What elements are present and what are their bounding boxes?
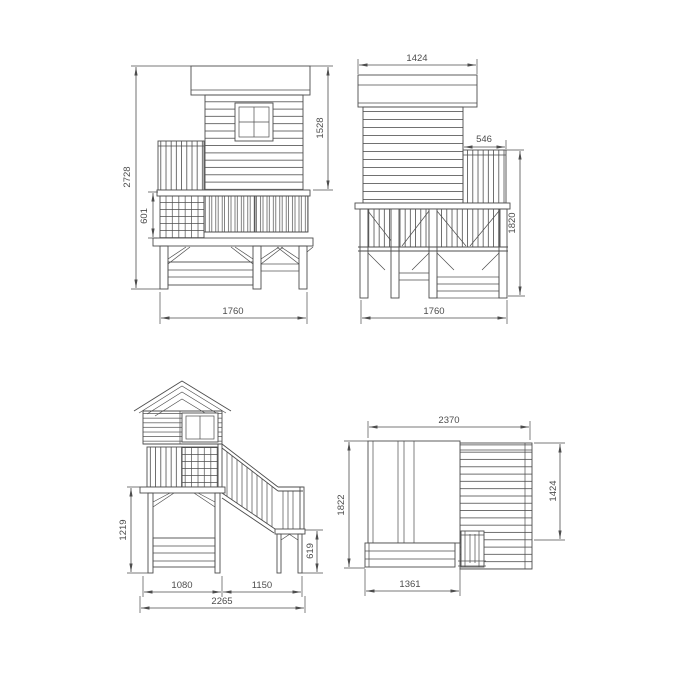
house-body (363, 107, 463, 203)
dim-plan-house-depth: 1361 (399, 579, 420, 590)
dim-side-total-height: 2728 (122, 166, 133, 187)
sandbox-plan (365, 543, 455, 567)
dim-plan-total-depth: 1822 (336, 494, 347, 515)
dim-front-house-section-width: 1080 (171, 580, 192, 591)
understructure (358, 209, 508, 298)
side-elevation-view: 2728 601 1528 1760 (122, 66, 333, 324)
plan-view: 2370 1822 1424 1361 (336, 415, 565, 596)
dim-front-total-width: 2265 (211, 596, 232, 607)
stairs (222, 493, 305, 573)
dim-plan-deck-depth: 1424 (548, 480, 559, 501)
front-elevation-view: 1219 619 1080 1150 2265 (118, 381, 323, 613)
dim-side-railing-height: 601 (139, 208, 150, 224)
roof (191, 66, 310, 95)
climbing-panel (158, 141, 204, 190)
legs (160, 246, 313, 289)
roof (358, 75, 477, 107)
drawing-page: 2728 601 1528 1760 (0, 0, 680, 680)
dim-front-landing-height: 619 (305, 543, 316, 559)
balcony (143, 444, 222, 487)
dim-rear-height: 1820 (507, 212, 518, 233)
side-railing (463, 150, 506, 203)
rear-elevation-view: 1424 546 1820 1760 (355, 53, 525, 324)
dim-rear-side-railing-width: 546 (476, 134, 492, 145)
dim-rear-roof-width: 1424 (406, 53, 427, 64)
dim-rear-width: 1760 (423, 306, 444, 317)
playhouse-technical-drawing: 2728 601 1528 1760 (0, 0, 680, 680)
dim-plan-total-width: 2370 (438, 415, 459, 426)
window (182, 413, 218, 442)
sandbox (153, 538, 215, 567)
dim-front-stair-section-width: 1150 (252, 580, 272, 591)
roof-plan (368, 441, 460, 543)
dim-front-understructure-height: 1219 (118, 519, 129, 540)
stair-railing (222, 444, 304, 529)
railing (157, 190, 310, 238)
ladder (458, 531, 486, 567)
window (235, 103, 273, 141)
sandbox (168, 262, 253, 285)
dim-side-house-height: 1528 (315, 117, 326, 138)
bench (261, 264, 299, 271)
platform (140, 487, 225, 493)
dim-side-width: 1760 (222, 306, 243, 317)
platform (153, 238, 313, 246)
platform (355, 203, 510, 209)
